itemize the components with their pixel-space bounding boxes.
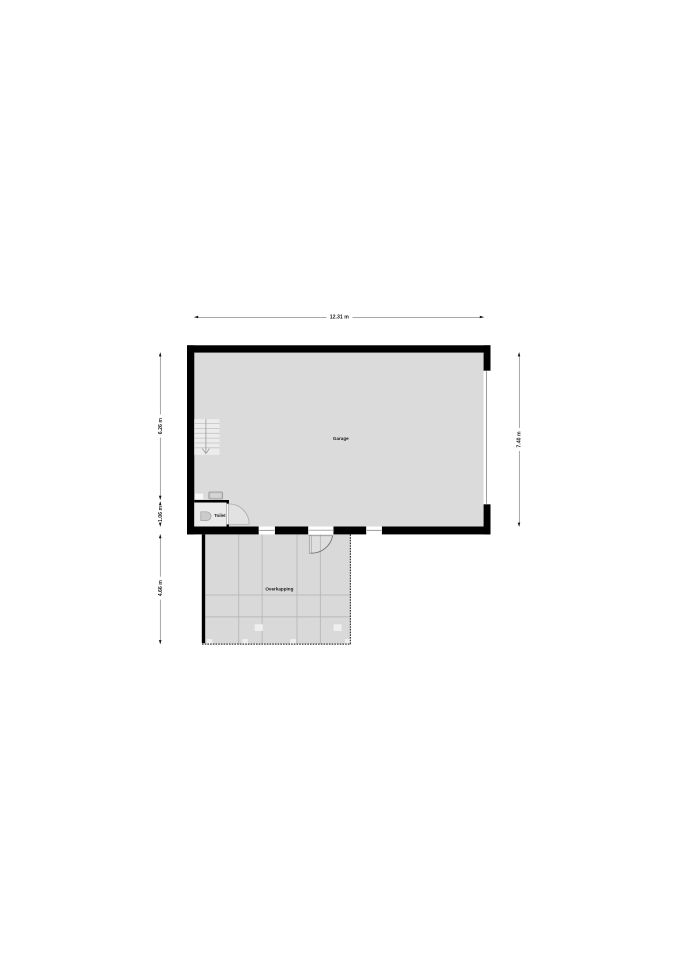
svg-text:Toilet: Toilet	[214, 513, 226, 518]
svg-text:7.40 m: 7.40 m	[517, 431, 523, 448]
svg-text:12.31 m: 12.31 m	[330, 315, 349, 321]
svg-text:1.06 m: 1.06 m	[158, 506, 164, 523]
svg-text:6.26 m: 6.26 m	[158, 418, 164, 435]
svg-text:Garage: Garage	[333, 436, 349, 441]
svg-text:4.66 m: 4.66 m	[158, 580, 164, 597]
svg-text:Overkapping: Overkapping	[265, 587, 293, 592]
